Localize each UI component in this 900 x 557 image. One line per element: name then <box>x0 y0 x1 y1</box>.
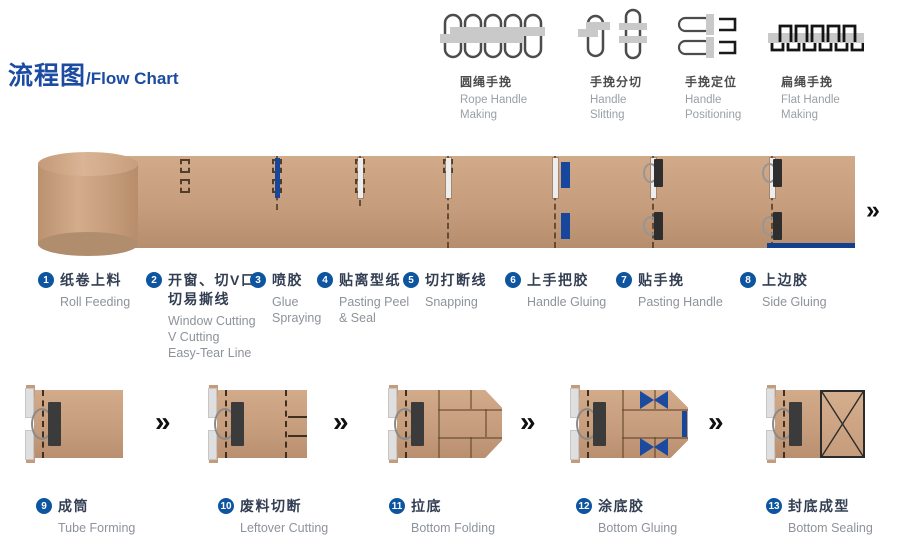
legend-label-en: Handle Positioning <box>685 93 743 123</box>
step-side-gluing: 8 上边胶 Side Gluing <box>740 271 827 310</box>
bag-handle <box>643 159 671 187</box>
web-mark-pasted-handle <box>648 156 662 248</box>
step-label-en: Leftover Cutting <box>240 520 328 536</box>
legend-label-zh: 圆绳手挽 <box>460 73 545 90</box>
crease-line <box>622 409 688 411</box>
step-label-zh: 拉底 <box>411 497 495 516</box>
handle-pad <box>48 402 61 446</box>
roll-top <box>38 152 138 176</box>
cut-mark <box>180 159 190 173</box>
step-label-en: Window Cutting V Cutting Easy-Tear Line <box>168 313 256 361</box>
seam-strip <box>570 430 579 460</box>
glue-strip <box>682 411 687 437</box>
legend-item-flat-handle: 扁绳手挽 Flat Handle Making <box>768 6 864 123</box>
step-pasting-peel-seal: 4 贴离型纸 Pasting Peel & Seal <box>317 271 409 326</box>
legend-item-rope-handle: 圆绳手挽 Rope Handle Making <box>440 6 545 123</box>
step-label-zh: 上边胶 <box>762 271 827 290</box>
glue-patch <box>561 162 570 188</box>
seam-strip <box>208 430 217 460</box>
flat-handle-making-icon <box>768 6 864 60</box>
bag-leftover-cutting <box>208 390 307 458</box>
step-label-en: Glue Spraying <box>272 294 321 326</box>
handle-pad <box>411 402 424 446</box>
step-label-zh: 涂底胶 <box>598 497 677 516</box>
crease-line <box>438 409 502 411</box>
side-glue-strip <box>767 243 855 248</box>
crease-line <box>438 390 440 458</box>
seam-strip <box>388 430 397 460</box>
web-mark-window-cutting <box>180 156 194 248</box>
web-mark-handle-glue <box>550 156 564 248</box>
step-bottom-folding: 11 拉底 Bottom Folding <box>389 497 495 536</box>
step-number-badge: 12 <box>576 498 592 514</box>
cut-dash-line <box>285 390 287 458</box>
step-number-badge: 8 <box>740 272 756 288</box>
cut-mark <box>180 179 190 193</box>
web-mark-release-paper <box>355 156 369 248</box>
page-title: 流程图/Flow Chart <box>8 56 179 92</box>
step-label-en: Pasting Handle <box>638 294 723 310</box>
step-label-zh: 封底成型 <box>788 497 873 516</box>
step-number-badge: 5 <box>403 272 419 288</box>
sealed-bottom <box>820 390 865 458</box>
legend-item-handle-slitting: 手挽分切 Handle Slitting <box>578 6 648 123</box>
bag-tube-forming <box>25 390 123 458</box>
step-bottom-sealing: 13 封底成型 Bottom Sealing <box>766 497 873 536</box>
paper-web <box>110 156 855 248</box>
page-title-en: /Flow Chart <box>86 69 179 88</box>
step-window-cutting: 2 开窗、切V口 切易撕线 Window Cutting V Cutting E… <box>146 271 256 361</box>
step-handle-gluing: 6 上手把胶 Handle Gluing <box>505 271 606 310</box>
glue-patch <box>561 213 570 239</box>
legend-label-en: Rope Handle Making <box>460 93 545 123</box>
web-mark-snapping <box>443 156 457 248</box>
glue-triangle <box>640 438 654 456</box>
seam-strip <box>25 430 34 460</box>
crease-line <box>470 437 472 458</box>
step-snapping: 5 切打断线 Snapping <box>403 271 487 310</box>
glue-line <box>275 158 280 198</box>
flow-arrow: » <box>520 408 536 436</box>
step-tube-forming: 9 成筒 Tube Forming <box>36 497 135 536</box>
crease-line <box>485 409 487 437</box>
step-label-zh: 废料切断 <box>240 497 328 516</box>
crease-line <box>470 390 472 409</box>
release-paper-strip <box>446 158 451 198</box>
step-label-en: Bottom Gluing <box>598 520 677 536</box>
step-number-badge: 6 <box>505 272 521 288</box>
glue-triangle <box>654 438 668 456</box>
step-pasting-handle: 7 贴手挽 Pasting Handle <box>616 271 723 310</box>
bag-handle <box>762 212 790 240</box>
glue-triangle <box>654 391 668 409</box>
step-label-en: Bottom Folding <box>411 520 495 536</box>
release-paper-strip <box>358 158 363 198</box>
glue-triangle <box>640 391 654 409</box>
cut-notch <box>288 416 307 418</box>
step-label-zh: 成筒 <box>58 497 135 516</box>
step-number-badge: 2 <box>146 272 162 288</box>
flow-arrow: » <box>155 408 171 436</box>
handle-pad <box>231 402 244 446</box>
legend-label-en: Handle Slitting <box>590 93 648 123</box>
web-mark-glue-spray <box>272 156 286 248</box>
step-label-zh: 贴离型纸 <box>339 271 409 290</box>
step-number-badge: 9 <box>36 498 52 514</box>
handle-pad <box>654 159 663 187</box>
roll-bottom <box>38 232 138 256</box>
step-number-badge: 4 <box>317 272 333 288</box>
handle-pad <box>773 159 782 187</box>
step-number-badge: 11 <box>389 498 405 514</box>
legend-label-zh: 扁绳手挽 <box>781 73 864 90</box>
step-glue-spraying: 3 喷胶 Glue Spraying <box>250 271 321 326</box>
web-mark-side-glue <box>767 156 781 248</box>
step-label-zh: 开窗、切V口 切易撕线 <box>168 271 256 309</box>
step-label-en: Side Gluing <box>762 294 827 310</box>
legend-label-zh: 手挽分切 <box>590 73 648 90</box>
flow-arrow: » <box>333 408 349 436</box>
legend-label-zh: 手挽定位 <box>685 73 743 90</box>
cut-notch <box>288 435 307 437</box>
rope-handle-making-icon <box>440 6 545 60</box>
handle-positioning-icon <box>677 6 743 60</box>
step-number-badge: 7 <box>616 272 632 288</box>
step-number-badge: 3 <box>250 272 266 288</box>
bag-bottom-sealing <box>766 390 865 458</box>
step-leftover-cutting: 10 废料切断 Leftover Cutting <box>218 497 328 536</box>
legend-item-handle-positioning: 手挽定位 Handle Positioning <box>677 6 743 123</box>
handle-pad <box>654 212 663 240</box>
step-label-zh: 纸卷上料 <box>60 271 130 290</box>
seam-strip <box>766 430 775 460</box>
bag-handle <box>643 212 671 240</box>
page-title-zh: 流程图 <box>8 62 86 90</box>
bag-bottom-gluing <box>570 390 688 458</box>
step-label-zh: 喷胶 <box>272 271 321 290</box>
handle-pad <box>773 212 782 240</box>
step-number-badge: 10 <box>218 498 234 514</box>
web-continue-arrow: » <box>866 198 880 223</box>
step-number-badge: 13 <box>766 498 782 514</box>
bag-handle <box>762 159 790 187</box>
step-label-en: Handle Gluing <box>527 294 606 310</box>
step-label-zh: 切打断线 <box>425 271 487 290</box>
step-label-en: Tube Forming <box>58 520 135 536</box>
step-label-en: Bottom Sealing <box>788 520 873 536</box>
step-label-zh: 上手把胶 <box>527 271 606 290</box>
handle-slitting-icon <box>578 6 648 60</box>
step-label-en: Pasting Peel & Seal <box>339 294 409 326</box>
flow-arrow: » <box>708 408 724 436</box>
bag-bottom-folding <box>388 390 502 458</box>
crease-line <box>622 390 624 458</box>
step-label-zh: 贴手挽 <box>638 271 723 290</box>
step-roll-feeding: 1 纸卷上料 Roll Feeding <box>38 271 130 310</box>
legend-label-en: Flat Handle Making <box>781 93 864 123</box>
handle-pad <box>789 402 802 446</box>
paper-roll <box>38 152 138 256</box>
release-paper-strip <box>553 158 558 198</box>
step-label-en: Snapping <box>425 294 487 310</box>
step-bottom-gluing: 12 涂底胶 Bottom Gluing <box>576 497 677 536</box>
step-number-badge: 1 <box>38 272 54 288</box>
step-label-en: Roll Feeding <box>60 294 130 310</box>
handle-pad <box>593 402 606 446</box>
